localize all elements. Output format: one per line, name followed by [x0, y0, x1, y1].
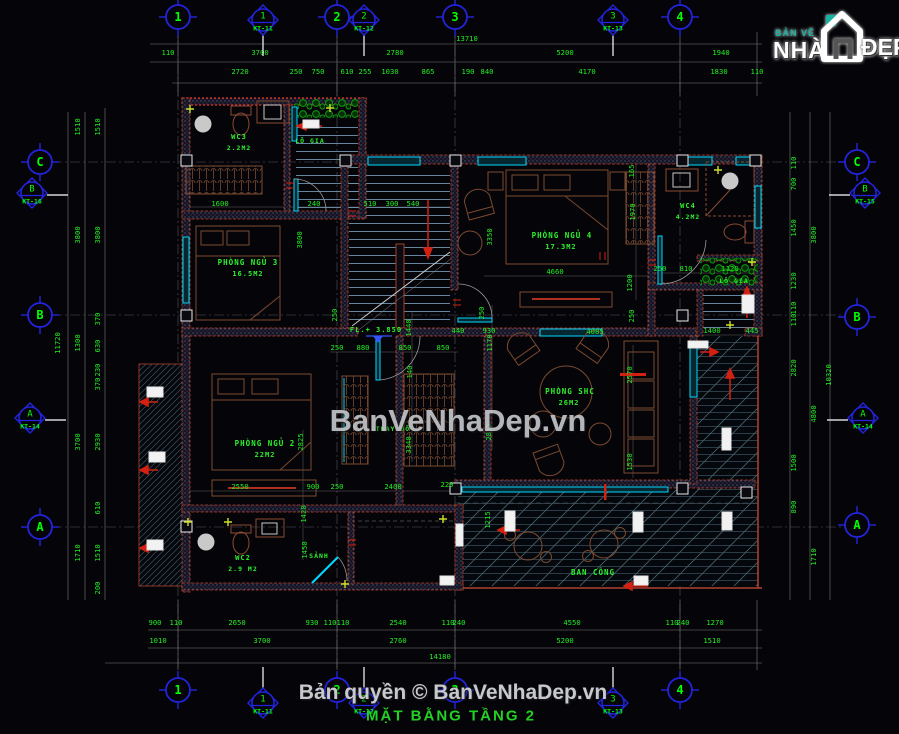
room-label: 4.2M2 — [676, 213, 701, 221]
dimension-text: 110 — [337, 618, 350, 627]
dimension-text: 4085 — [586, 327, 603, 336]
room-label: 16.5M2 — [232, 270, 263, 278]
dimension-text: 2930 — [93, 433, 102, 450]
dimension-text: 250 — [331, 482, 344, 491]
dimension-text: 2825 — [296, 433, 305, 450]
dimension-text: 1400 — [703, 326, 720, 335]
axis-bubble-label: 1 — [174, 683, 181, 697]
dimension-text: 2815 — [484, 423, 493, 440]
dimension-text: 1215 — [483, 511, 492, 528]
dimension-text: 4800 — [809, 405, 818, 422]
axis-bubble-label: A — [36, 520, 44, 534]
section-marker-KT-13: 3KT-13 — [598, 5, 628, 56]
dimension-text: 3700 — [251, 48, 268, 57]
dimension-text: 930 — [306, 618, 319, 627]
dimension-text: 2760 — [389, 636, 406, 645]
room-label: WC4 — [680, 202, 696, 210]
axis-bubble-label: 1 — [174, 10, 181, 24]
section-marker-ref: KT-16 — [22, 198, 42, 206]
dimension-text: 1710 — [73, 544, 82, 561]
dimension-text: 110 — [789, 157, 798, 170]
axis-bubble-label: 3 — [451, 10, 458, 24]
dimension-text: 11720 — [53, 332, 62, 354]
dimension-text: 250 — [331, 343, 344, 352]
section-marker-number: 2 — [361, 12, 366, 22]
dimension-text: 250 — [627, 310, 636, 323]
dimension-text: 1510 — [703, 636, 720, 645]
dimension-text: 850 — [399, 343, 412, 352]
dimension-text: 370 — [93, 378, 102, 391]
room-label: PHÒNG NGỦ 2 — [235, 439, 296, 448]
axis-bubble-4: 4 — [661, 0, 699, 36]
room-label: PHÒNG NGỦ 3 — [218, 258, 279, 267]
section-marker-KT-16: BKT-16 — [17, 178, 68, 208]
dimension-text: 1230 — [789, 272, 798, 289]
dimension-text: 1510 — [93, 118, 102, 135]
section-marker-ref: KT-14 — [853, 423, 873, 431]
dimension-text: 810 — [680, 264, 693, 273]
room-label: FL.+ 3.850 — [350, 326, 402, 334]
dimension-text: 3700 — [253, 636, 270, 645]
axis-bubble-label: B — [853, 310, 860, 324]
dimension-text: 610 — [341, 67, 354, 76]
dimension-text: 110 — [162, 48, 175, 57]
axis-bubble-label: 2 — [333, 10, 340, 24]
section-marker-KT-11: 1KT-11 — [248, 667, 278, 718]
floorplan-drawing: 1371011037002780520019402720250750610255… — [0, 0, 899, 734]
dimension-text: 1200 — [625, 274, 634, 291]
axis-bubble-B: B — [838, 298, 876, 336]
dimension-text: 850 — [437, 343, 450, 352]
dimension-text: 240 — [677, 618, 690, 627]
dimension-text: 4550 — [563, 618, 580, 627]
section-marker-number: B — [29, 185, 34, 195]
dimension-text: 1010 — [149, 636, 166, 645]
axis-bubble-C: C — [838, 143, 876, 181]
dimension-text: 250 — [290, 67, 303, 76]
dimension-text: 890 — [789, 501, 798, 514]
section-marker-number: A — [860, 410, 866, 420]
section-marker-KT-14: AKT-14 — [827, 403, 878, 433]
dimension-text: 2570 — [625, 366, 634, 383]
dimension-text: 14180 — [429, 652, 451, 661]
copyright-text: Bản quyền © BanVeNhaDep.vn — [299, 681, 607, 705]
dimension-text: 3800 — [93, 226, 102, 243]
axis-bubble-label: B — [36, 308, 43, 322]
dimension-text: 2540 — [389, 618, 406, 627]
dimension-text: 900 — [149, 618, 162, 627]
cad-floorplan-canvas: 1371011037002780520019402720250750610255… — [0, 0, 899, 734]
dimension-text: 240 — [453, 618, 466, 627]
site-logo: BẢN VẼ NHÀ ĐẸP — [768, 5, 898, 65]
room-label: BAN CÔNG — [571, 568, 615, 577]
axis-bubble-label: 4 — [676, 10, 683, 24]
dimension-text: 1300 — [73, 334, 82, 351]
dimension-text: 370 — [93, 313, 102, 326]
dimension-text: 2650 — [228, 618, 245, 627]
dimension-text: 5200 — [556, 48, 573, 57]
dimension-text: 1420 — [299, 505, 308, 522]
section-marker-number: 1 — [260, 12, 265, 22]
axis-bubble-label: 4 — [676, 683, 683, 697]
section-marker-ref: KT-12 — [354, 25, 374, 33]
axis-bubble-3: 3 — [436, 0, 474, 36]
section-marker-number: 3 — [610, 695, 615, 705]
room-label: THAY ĐỒ — [376, 424, 412, 433]
drawing-title: MẶT BẰNG TẦNG 2 — [366, 708, 536, 725]
axis-bubble-A: A — [838, 506, 876, 544]
section-marker-ref: KT-13 — [603, 708, 623, 716]
dimension-text: 1030 — [381, 67, 398, 76]
section-marker-number: A — [27, 410, 33, 420]
dimension-text: 440 — [452, 326, 465, 335]
room-label: 17.3M2 — [545, 243, 576, 251]
room-label: LÔ GIA — [719, 276, 748, 285]
dimension-text: 900 — [307, 482, 320, 491]
dimension-text: 250 — [330, 309, 339, 322]
dimension-text: 880 — [357, 343, 370, 352]
dimension-text: 110 — [789, 314, 798, 327]
room-label: SẢNH — [309, 551, 329, 560]
dimension-text: 840 — [481, 67, 494, 76]
dimension-text: 3800 — [73, 226, 82, 243]
axis-bubble-1: 1 — [159, 0, 197, 36]
dimension-text: 1970 — [628, 203, 637, 220]
dimension-text: 540 — [407, 199, 420, 208]
dimension-text: 1710 — [809, 548, 818, 565]
dimension-text: 200 — [93, 582, 102, 595]
dimension-text: 1450 — [300, 541, 309, 558]
axis-bubble-label: A — [853, 518, 861, 532]
section-marker-number: B — [862, 185, 867, 195]
dimension-text: 165 — [627, 165, 636, 178]
room-label: WC3 — [231, 133, 247, 141]
dimension-text: 2820 — [789, 359, 798, 376]
section-marker-ref: KT-11 — [253, 25, 273, 33]
section-marker-ref: KT-15 — [855, 198, 875, 206]
axis-bubble-4: 4 — [661, 671, 699, 709]
section-marker-ref: KT-13 — [603, 25, 623, 33]
dimension-text: 3700 — [73, 433, 82, 450]
dimension-text: 190 — [462, 67, 475, 76]
dimension-text: 250 — [654, 264, 667, 273]
dimension-text: 3800 — [295, 231, 304, 248]
dimension-text: 510 — [364, 199, 377, 208]
dimension-text: 700 — [789, 178, 798, 191]
dimension-text: 1830 — [710, 67, 727, 76]
section-marker-KT-12: 2KT-12 — [349, 5, 379, 56]
section-marker-ref: KT-14 — [20, 423, 40, 431]
dimension-text: 1600 — [211, 199, 228, 208]
dimension-text: 865 — [422, 67, 435, 76]
dimension-text: 930 — [483, 326, 496, 335]
section-marker-ref: KT-11 — [253, 708, 273, 716]
dimension-text: 110 — [789, 302, 798, 315]
room-label: 2.9 M2 — [228, 565, 257, 573]
axis-bubble-label: C — [853, 155, 860, 169]
room-label: 22M2 — [255, 451, 276, 459]
room-label: WC2 — [235, 554, 251, 562]
section-marker-number: 1 — [260, 695, 265, 705]
dimension-text: 2780 — [386, 48, 403, 57]
dimension-text: 250 — [477, 307, 486, 320]
dimension-text: 1120 — [721, 264, 738, 273]
room-label: LÔ GIA — [295, 136, 324, 145]
dimension-text: 255 — [359, 67, 372, 76]
dimension-text: 110 — [170, 618, 183, 627]
dimension-text: 445 — [746, 326, 759, 335]
dimension-text: 3800 — [809, 226, 818, 243]
dimension-text: 1500 — [789, 454, 798, 471]
axis-bubble-C: C — [21, 143, 59, 181]
axis-bubble-B: B — [21, 296, 59, 334]
dimension-text: 1450 — [789, 219, 798, 236]
dimension-text: 1940 — [712, 48, 729, 57]
dimension-text: 2720 — [231, 67, 248, 76]
dimension-text: 110 — [751, 67, 764, 76]
dimension-text: 750 — [312, 67, 325, 76]
dimension-text: 1170 — [485, 334, 494, 351]
dimension-text: 1510 — [93, 544, 102, 561]
section-marker-number: 3 — [610, 12, 615, 22]
room-label: 26M2 — [559, 399, 580, 407]
dimension-text: 220 — [441, 480, 454, 489]
dimension-text: 1270 — [706, 618, 723, 627]
dimension-text: 110 — [324, 618, 337, 627]
dimension-text: 300 — [386, 199, 399, 208]
room-label: PHÒNG NGỦ 4 — [532, 231, 593, 240]
axis-bubble-1: 1 — [159, 671, 197, 709]
room-label: PHÒNG SHC — [545, 387, 595, 396]
logo-text-suffix: ĐẸP — [861, 34, 899, 61]
dimension-text: 630 — [93, 340, 102, 353]
dimension-text: 5200 — [556, 636, 573, 645]
dimension-text: 13710 — [456, 34, 478, 43]
axis-bubble-label: C — [36, 155, 43, 169]
section-marker-KT-15: BKT-15 — [829, 178, 880, 208]
dimension-text: 2400 — [384, 482, 401, 491]
dimension-text: 1440 — [404, 319, 413, 336]
dimension-text: 230 — [93, 364, 102, 377]
dimension-text: 10320 — [824, 364, 833, 386]
dimension-text: 1510 — [73, 118, 82, 135]
dimension-text: 4660 — [546, 267, 563, 276]
dimension-text: 140 — [405, 366, 414, 379]
dimension-text: 3350 — [485, 228, 494, 245]
dimension-text: 2550 — [231, 482, 248, 491]
dimension-text: 4170 — [578, 67, 595, 76]
axis-bubble-A: A — [21, 508, 59, 546]
section-marker-KT-14: AKT-14 — [15, 403, 66, 433]
dimension-text: 610 — [93, 502, 102, 515]
dimension-text: 1530 — [625, 453, 634, 470]
dimension-text: 3340 — [404, 436, 413, 453]
room-label: 2.2M2 — [227, 144, 252, 152]
dimension-text: 240 — [308, 199, 321, 208]
